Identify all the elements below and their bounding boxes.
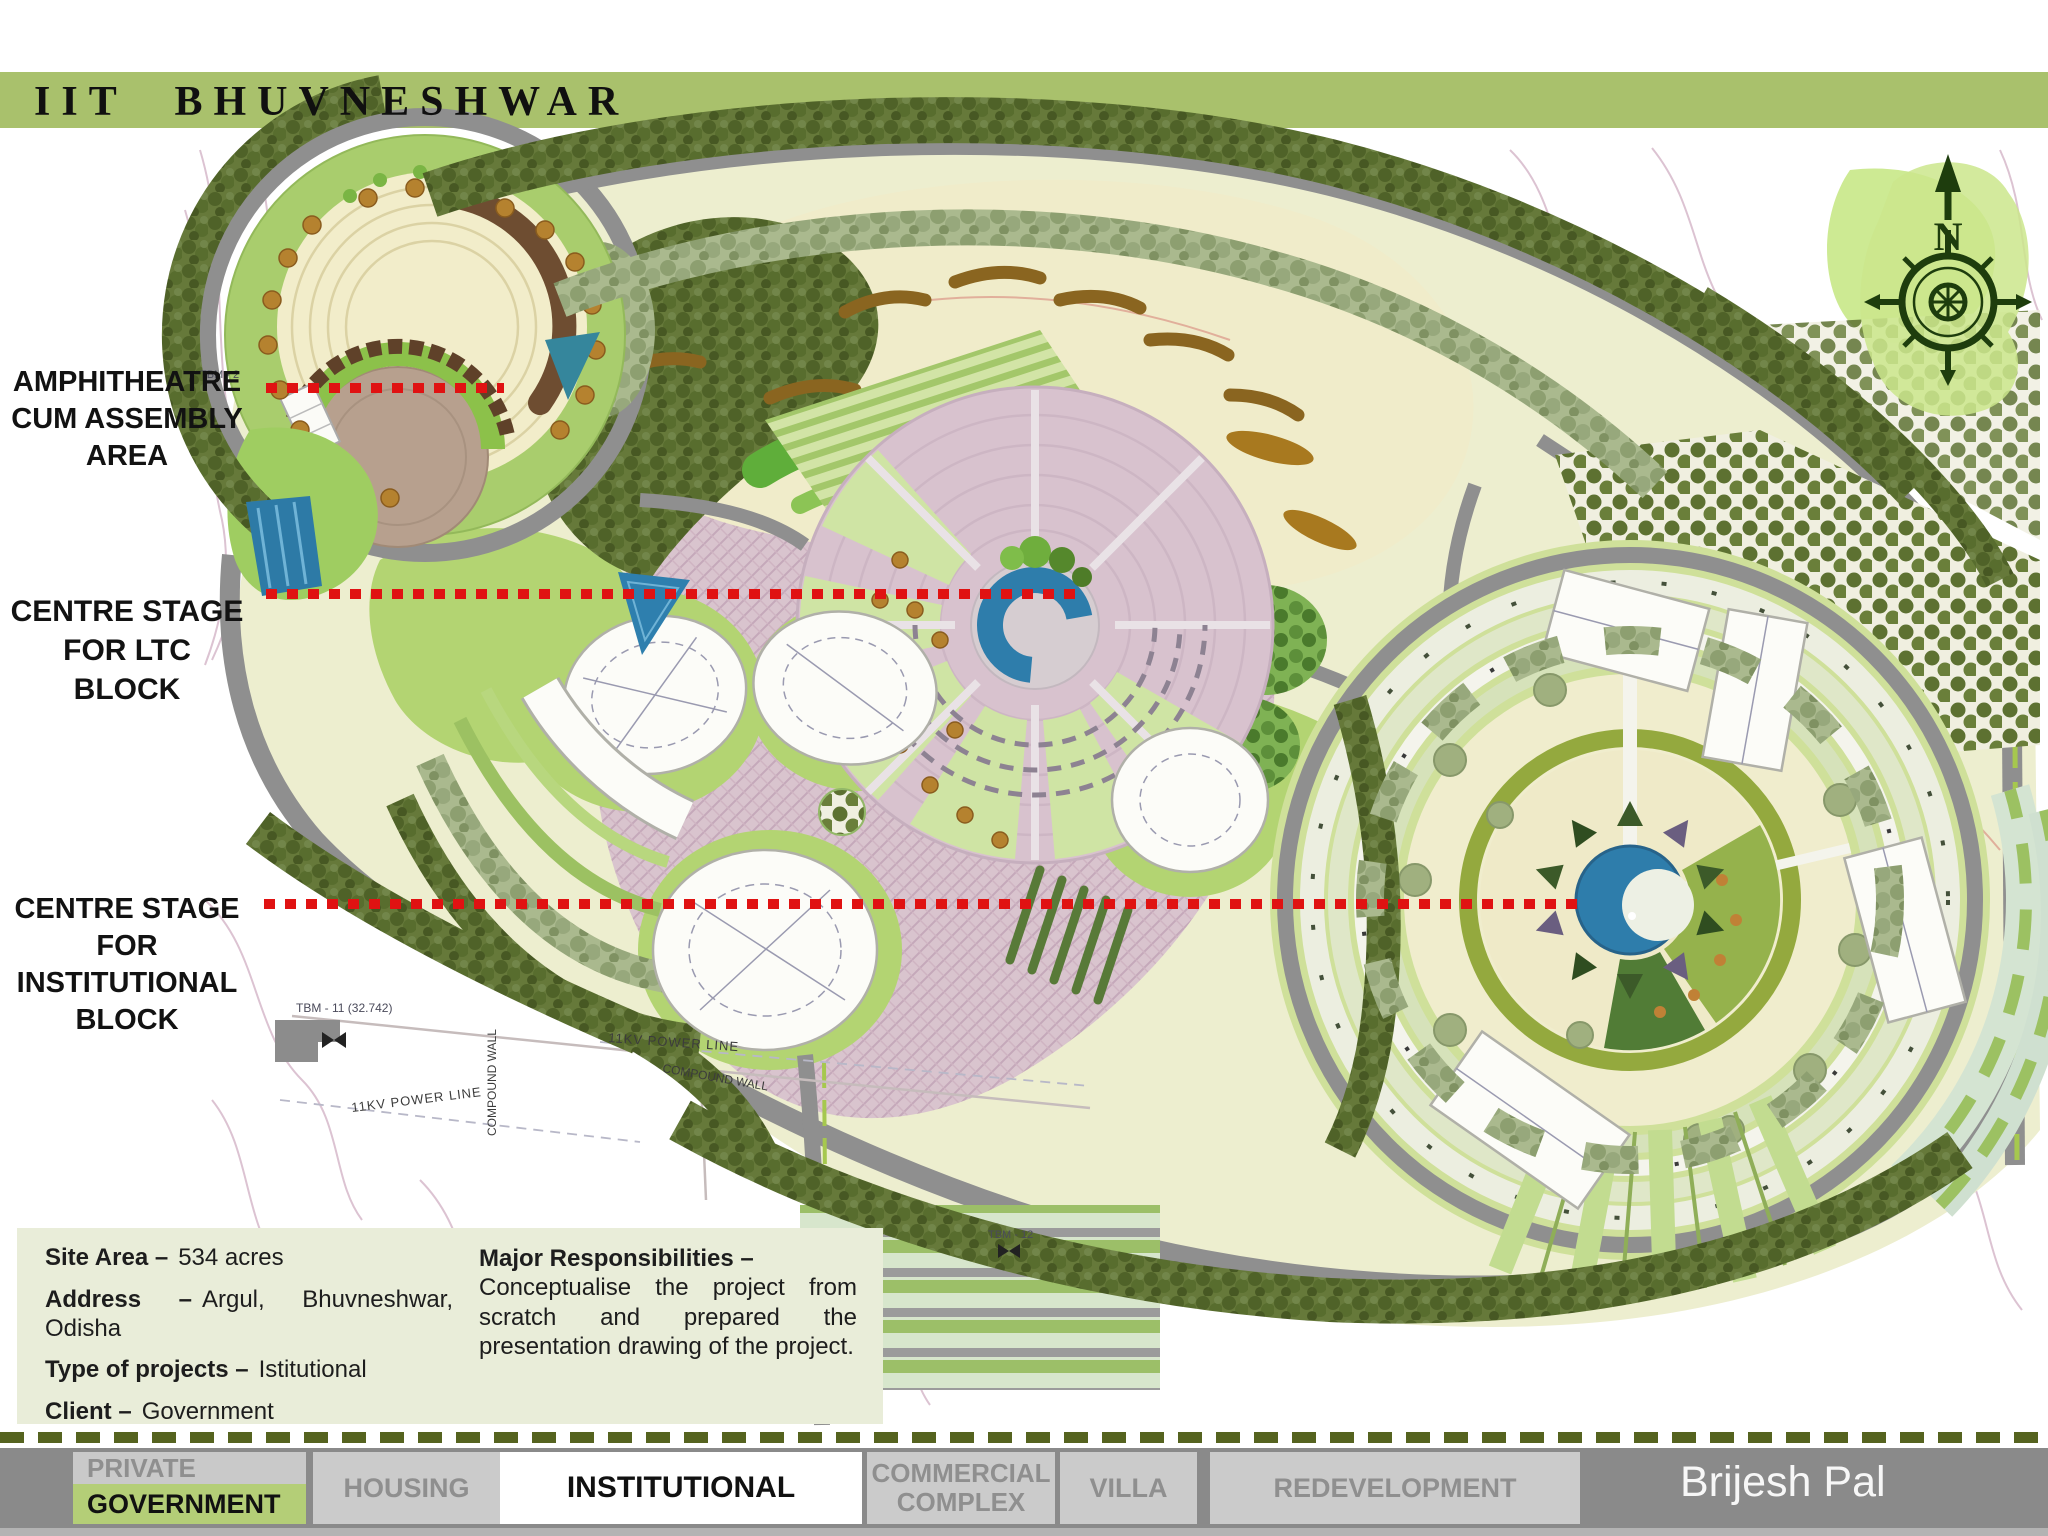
leader-line-ltc-block xyxy=(266,589,1084,599)
slide: N TBM - 2 TBM - 11 (32.742) xyxy=(0,0,2048,1536)
tab-government-label[interactable]: GOVERNMENT xyxy=(73,1484,306,1524)
tab-commercial-complex[interactable]: COMMERCIAL COMPLEX xyxy=(867,1452,1055,1524)
responsibilities-title: Major Responsibilities – xyxy=(479,1244,857,1273)
map-label-tbm11: TBM - 11 (32.742) xyxy=(296,1001,392,1015)
client-row: Client –Government xyxy=(45,1398,453,1427)
dashed-divider xyxy=(0,1432,2048,1443)
callout-ltc-block: CENTRE STAGE FOR LTC BLOCK xyxy=(6,592,248,709)
author-name: Brijesh Pal xyxy=(1680,1458,1886,1507)
responsibilities-body: Conceptualise the project from scratch a… xyxy=(479,1273,857,1361)
tab-redevelopment[interactable]: REDEVELOPMENT xyxy=(1210,1452,1580,1524)
responsibilities: Major Responsibilities – Conceptualise t… xyxy=(479,1244,857,1361)
tab-commercial-line1: COMMERCIAL xyxy=(871,1459,1050,1488)
tab-private-label[interactable]: PRIVATE xyxy=(73,1452,306,1484)
project-facts: Site Area –534 acres Address –Argul, Bhu… xyxy=(45,1244,453,1440)
map-label-power-line-2: 11KV POWER LINE xyxy=(351,1084,483,1115)
leader-line-institutional-block xyxy=(264,899,1580,909)
callout-institutional-block: CENTRE STAGE FOR INSTITUTIONAL BLOCK xyxy=(6,891,248,1039)
tab-private-government[interactable]: PRIVATE GOVERNMENT xyxy=(73,1452,306,1524)
leader-line-amphitheatre xyxy=(266,383,504,393)
map-label-tbm12: TBM - 12 xyxy=(988,1229,1033,1241)
callout-amphitheatre: AMPHITHEATRE CUM ASSEMBLY AREA xyxy=(6,364,248,475)
tab-villa[interactable]: VILLA xyxy=(1060,1452,1197,1524)
tab-bar-footer-strip xyxy=(0,1528,2048,1536)
project-type-row: Type of projects –Istitutional xyxy=(45,1356,453,1385)
project-info-panel: Site Area –534 acres Address –Argul, Bhu… xyxy=(17,1228,883,1424)
address-row: Address –Argul, Bhuvneshwar, Odisha xyxy=(45,1286,453,1344)
site-area-row: Site Area –534 acres xyxy=(45,1244,453,1273)
tab-housing[interactable]: HOUSING xyxy=(313,1452,500,1524)
tab-institutional[interactable]: INSTITUTIONAL xyxy=(500,1452,862,1524)
map-label-compound-wall-1: COMPOUND WALL xyxy=(485,1029,499,1136)
tab-commercial-line2: COMPLEX xyxy=(897,1488,1026,1517)
page-title: IIT BHUVNESHWAR xyxy=(34,78,629,126)
